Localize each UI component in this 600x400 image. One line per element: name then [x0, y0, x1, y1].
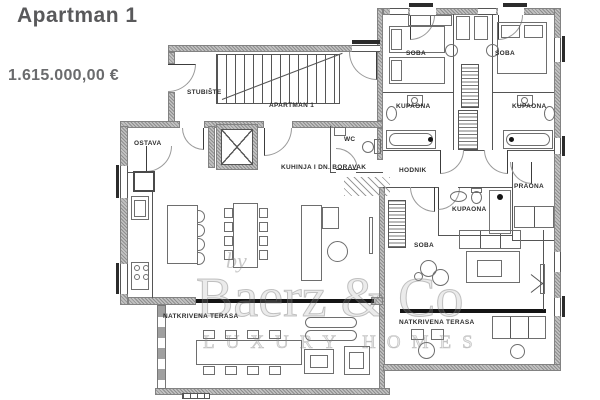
pillow	[391, 60, 402, 81]
sink	[334, 127, 346, 136]
partition-line	[383, 92, 453, 93]
room-label-terasa-2: NATKRIVENA TERASA	[399, 319, 475, 326]
wall-segment	[383, 364, 561, 371]
window-sill	[562, 296, 565, 317]
sink	[450, 191, 467, 202]
terrace-sofa	[492, 316, 546, 339]
partition-line	[453, 14, 454, 150]
room-label-praona: PRAONA	[514, 183, 544, 190]
sun-lounger	[305, 317, 357, 328]
bed	[459, 230, 521, 249]
door-arc	[264, 128, 292, 156]
wardrobe	[458, 110, 478, 150]
desk	[456, 16, 470, 40]
kitchen-sink-basin	[134, 200, 146, 217]
partition-line	[492, 92, 554, 93]
tv-cabinet	[369, 217, 373, 254]
toilet-tank	[374, 139, 381, 154]
room-label-kupaona-2: KUPAONA	[512, 103, 546, 110]
wall-segment	[168, 52, 175, 64]
door-arc	[410, 187, 435, 212]
partition-line	[330, 172, 336, 173]
partition-line	[492, 14, 493, 150]
toilet	[471, 191, 482, 204]
fixture-dot	[428, 137, 433, 142]
partition-line	[458, 187, 512, 188]
coffee-table-round	[327, 241, 348, 262]
wardrobe	[461, 64, 479, 108]
glass-sliding-door	[196, 299, 374, 303]
wall-segment	[554, 8, 561, 371]
sofa	[301, 205, 322, 281]
window-sill	[562, 136, 565, 156]
sofa	[322, 207, 339, 229]
chair	[224, 222, 233, 232]
window-sill	[352, 40, 380, 44]
entrance-mat	[344, 177, 390, 196]
dining-table	[233, 203, 258, 268]
chair	[259, 236, 268, 246]
lounge-chair-seat	[349, 352, 364, 369]
wall-segment	[128, 297, 196, 305]
room-label-kuhinja: KUHINJA I DN. BORAVAK	[281, 164, 366, 171]
wall-segment	[377, 8, 383, 121]
room-label-stubiste: STUBIŠTE	[187, 89, 222, 96]
chair	[259, 208, 268, 218]
dresser	[408, 15, 452, 26]
wall-segment	[120, 121, 180, 128]
bar-stool	[197, 252, 205, 265]
door-arc	[349, 52, 377, 80]
chair	[224, 208, 233, 218]
room-label-soba-2: SOBA	[495, 50, 515, 57]
stove-burner	[134, 274, 140, 280]
chair	[259, 250, 268, 260]
pillow	[391, 29, 402, 50]
door-arc	[484, 150, 508, 174]
room-label-terasa-1: NATKRIVENA TERASA	[163, 313, 239, 320]
chair	[224, 236, 233, 246]
room-label-wc: WC	[344, 136, 355, 143]
bar-stool	[197, 238, 205, 251]
bathtub-inner	[389, 133, 433, 146]
fridge	[133, 171, 155, 192]
sun-lounger	[305, 330, 357, 341]
window-sill	[503, 3, 527, 7]
partition-line	[152, 190, 153, 298]
chair	[225, 330, 237, 339]
window	[478, 8, 496, 15]
floorplan-drawing: STUBIŠTE APARTMAN 1 OSTAVA WC KUHINJA I …	[0, 0, 600, 400]
room-label-kupaona-3: KUPAONA	[452, 206, 486, 213]
terrace-table-round	[510, 344, 525, 359]
window-sill	[116, 165, 119, 198]
partition-line	[356, 172, 383, 173]
elevator	[221, 129, 253, 165]
kitchen-island	[167, 205, 198, 264]
bar-stool	[197, 224, 205, 237]
bar-stool	[197, 210, 205, 223]
wall-segment	[168, 45, 383, 52]
wall-segment	[208, 126, 215, 168]
chair	[203, 366, 215, 375]
window	[554, 252, 561, 272]
pillow	[524, 25, 543, 38]
stove-burner	[134, 265, 140, 271]
window-sill	[409, 3, 433, 7]
coffee-table	[477, 260, 502, 277]
glass-sliding-door	[400, 309, 546, 313]
lounge-stool	[414, 272, 423, 281]
room-label-ostava: OSTAVA	[134, 140, 161, 147]
terrace-table-round	[418, 342, 435, 359]
window	[554, 38, 561, 62]
room-label-soba-3: SOBA	[414, 242, 434, 249]
partition-line	[508, 150, 554, 151]
chair	[203, 330, 215, 339]
window	[120, 166, 128, 198]
window-sill	[562, 36, 565, 62]
tv-panel	[540, 264, 545, 294]
chair	[411, 329, 424, 340]
room-label-apartman: APARTMAN 1	[269, 102, 314, 109]
window	[120, 264, 128, 294]
washer-dryer	[514, 206, 554, 228]
door-arc	[510, 162, 532, 184]
door-opening	[410, 8, 436, 15]
partition-line	[383, 150, 440, 151]
desk-chair	[445, 44, 458, 57]
chair	[224, 250, 233, 260]
window	[390, 8, 408, 15]
chair	[269, 330, 281, 339]
chair	[247, 330, 259, 339]
door-arc	[146, 146, 172, 172]
exterior-steps	[182, 393, 210, 399]
floorplan-page: Apartman 1 1.615.000,00 € STUBIŠTE APART…	[0, 0, 600, 400]
toilet	[362, 141, 374, 153]
room-label-soba-1: SOBA	[406, 50, 426, 57]
window-sill	[116, 263, 119, 294]
door-arc	[182, 128, 204, 150]
chair	[225, 366, 237, 375]
door-arc	[440, 150, 464, 174]
chair	[269, 366, 281, 375]
chair	[247, 366, 259, 375]
room-label-kupaona-1: KUPAONA	[396, 103, 430, 110]
stove-burner	[143, 274, 149, 280]
window	[352, 45, 380, 52]
desk	[474, 16, 488, 40]
pillow	[501, 25, 520, 38]
chair	[259, 222, 268, 232]
door-arc	[168, 64, 196, 92]
chair	[431, 329, 444, 340]
wardrobe	[388, 200, 406, 248]
window	[554, 298, 561, 316]
window	[554, 138, 561, 154]
lounge-chair-round	[432, 269, 449, 286]
lounge-chair-seat	[310, 355, 328, 368]
fixture-dot	[509, 137, 514, 142]
stove-burner	[143, 265, 149, 271]
door-opening	[498, 8, 524, 15]
room-label-hodnik: HODNIK	[399, 167, 426, 174]
fixture-dot	[497, 194, 503, 200]
terrace-table	[196, 340, 302, 365]
partition-line	[464, 150, 484, 151]
